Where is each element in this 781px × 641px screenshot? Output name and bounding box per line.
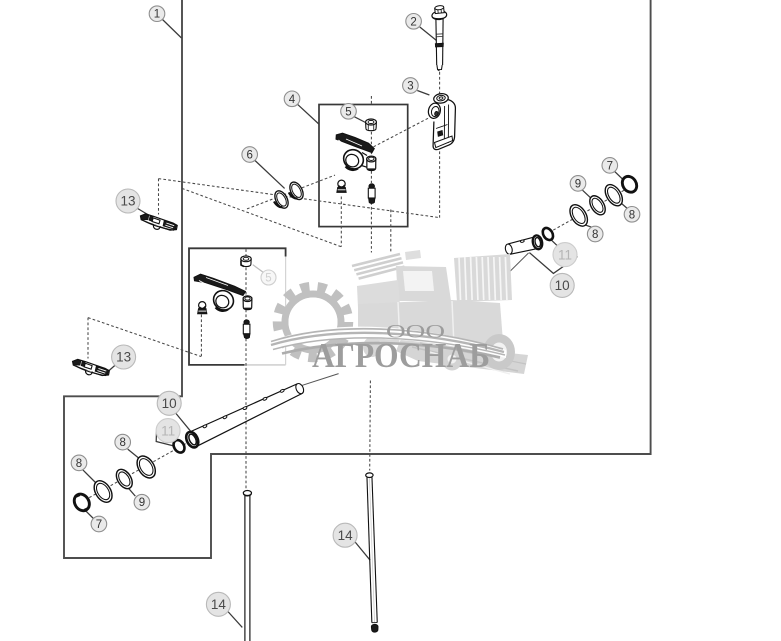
svg-text:10: 10 <box>162 396 177 411</box>
svg-text:1: 1 <box>154 9 160 21</box>
svg-text:9: 9 <box>575 178 581 190</box>
svg-text:7: 7 <box>96 519 102 531</box>
svg-text:5: 5 <box>345 106 351 118</box>
svg-text:11: 11 <box>558 247 572 262</box>
svg-text:13: 13 <box>120 194 135 209</box>
svg-text:11: 11 <box>161 423 175 438</box>
svg-text:14: 14 <box>338 528 354 543</box>
svg-text:9: 9 <box>139 497 145 509</box>
svg-text:3: 3 <box>407 81 413 93</box>
svg-text:8: 8 <box>76 458 82 470</box>
svg-text:13: 13 <box>116 350 131 365</box>
svg-text:10: 10 <box>555 278 570 293</box>
svg-text:2: 2 <box>410 16 416 28</box>
svg-text:АГРОСНАБ: АГРОСНАБ <box>312 336 490 375</box>
svg-text:4: 4 <box>289 94 296 106</box>
svg-text:5: 5 <box>265 273 271 285</box>
svg-text:8: 8 <box>119 437 125 449</box>
svg-text:8: 8 <box>592 229 598 241</box>
svg-text:8: 8 <box>629 209 635 221</box>
svg-text:6: 6 <box>246 150 252 162</box>
svg-text:7: 7 <box>607 160 613 172</box>
svg-text:14: 14 <box>211 597 227 612</box>
